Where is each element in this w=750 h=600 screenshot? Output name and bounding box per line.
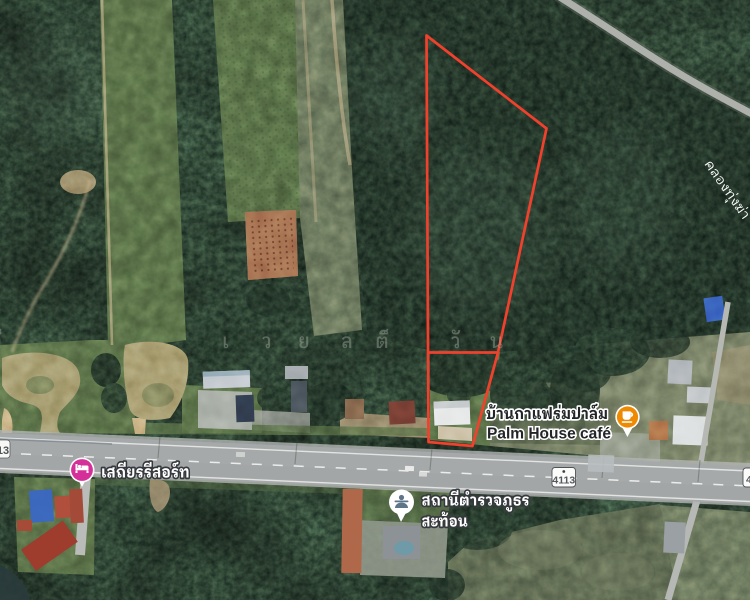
svg-text:Palm House café: Palm House café xyxy=(487,426,611,443)
svg-text:13: 13 xyxy=(0,445,9,457)
svg-text:4113: 4113 xyxy=(552,475,575,487)
svg-text:4: 4 xyxy=(746,474,750,486)
